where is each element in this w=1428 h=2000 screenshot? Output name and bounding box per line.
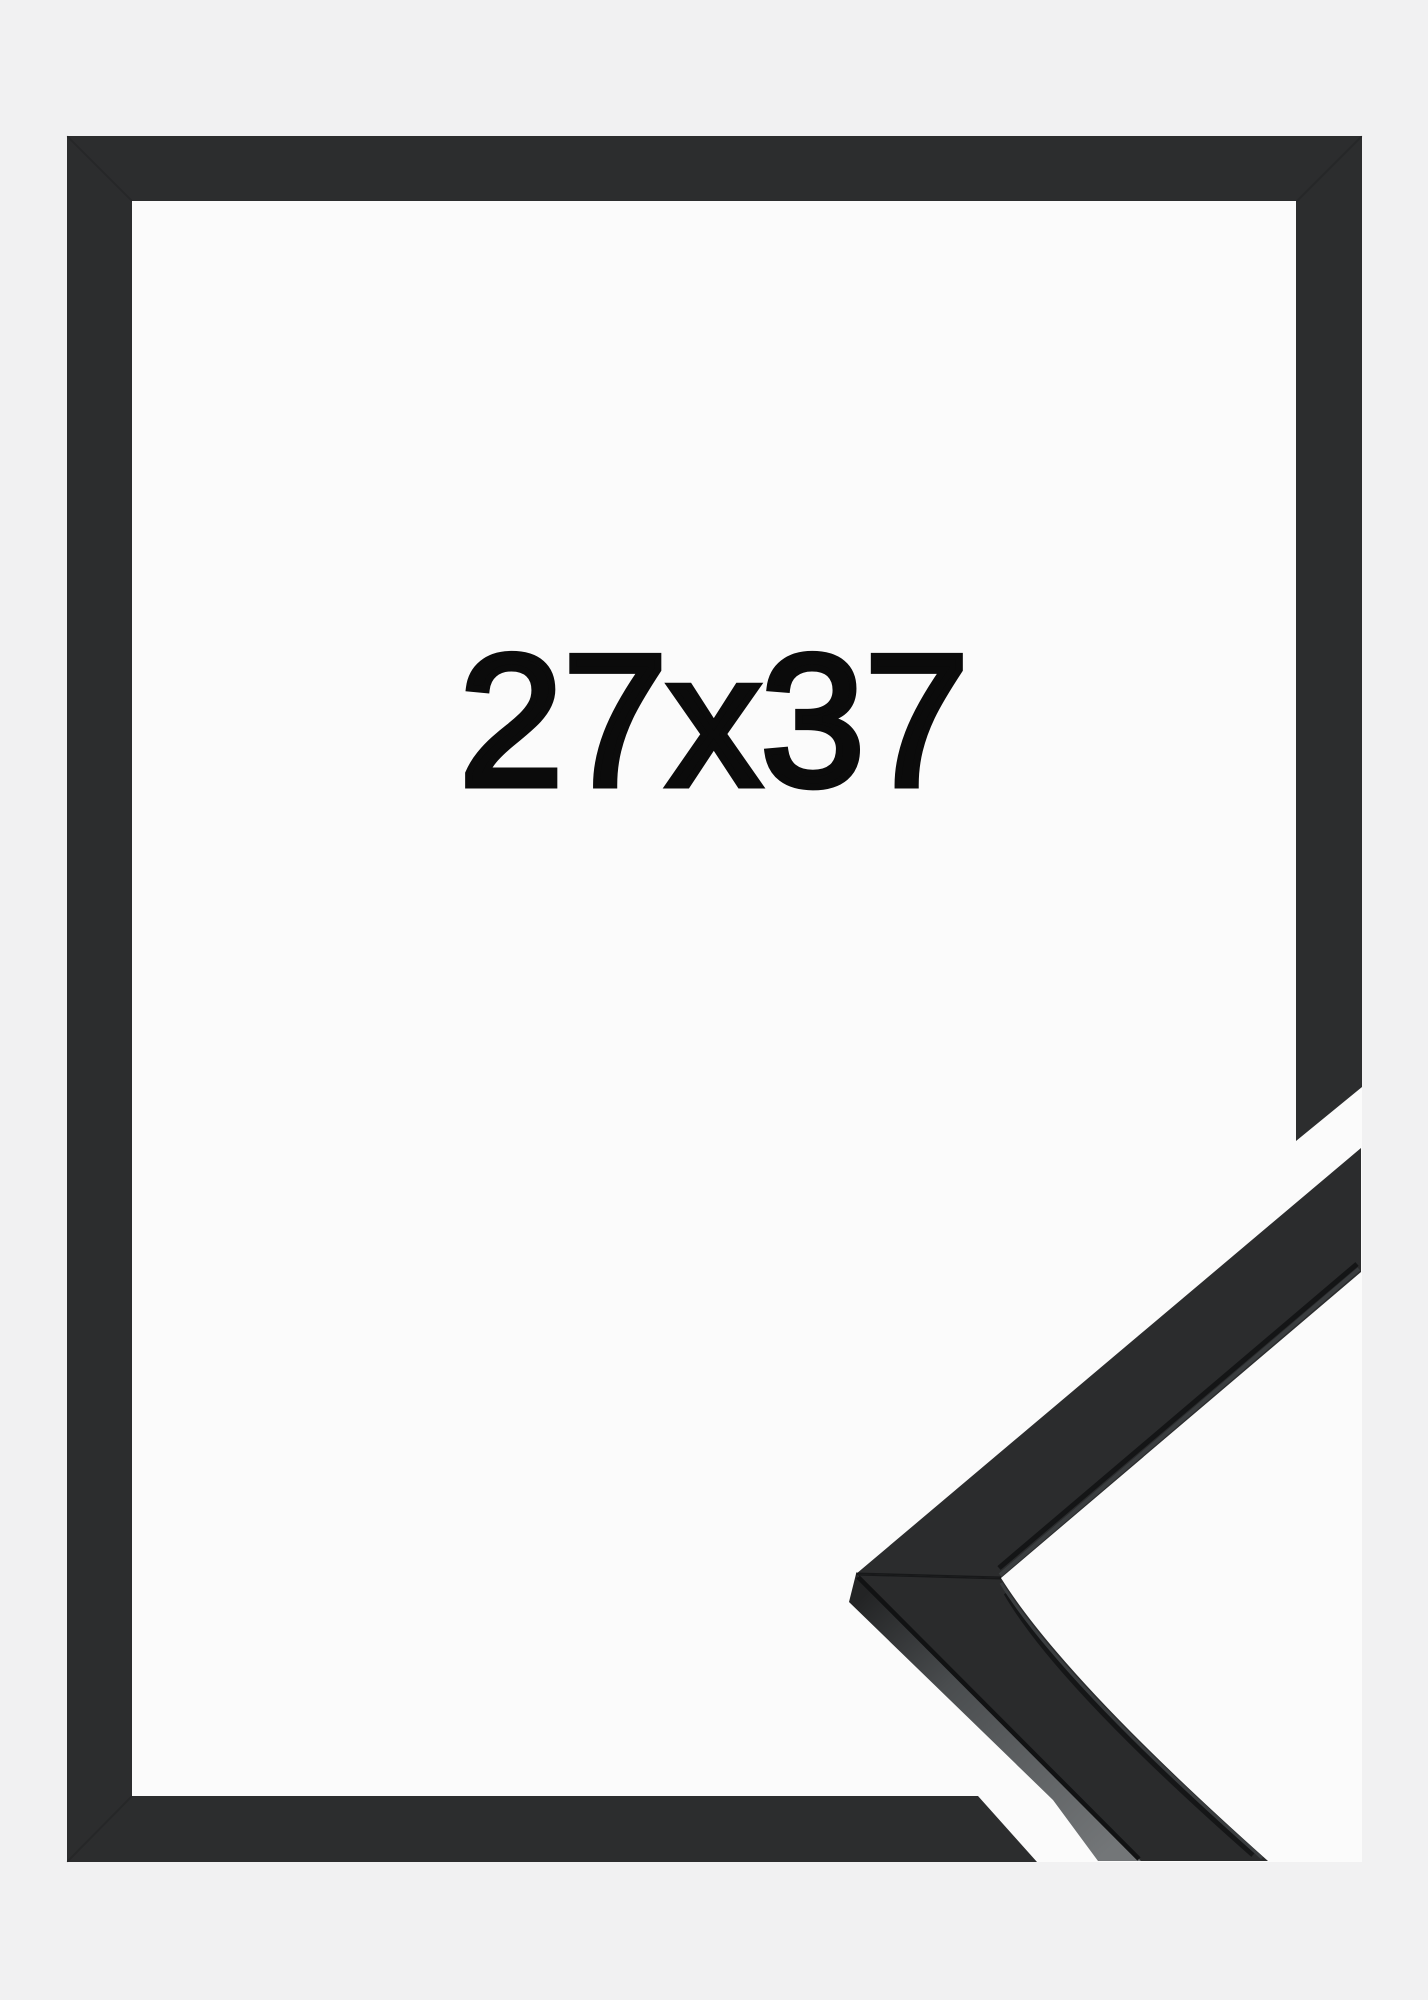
svg-text:27x37: 27x37 bbox=[459, 616, 969, 825]
